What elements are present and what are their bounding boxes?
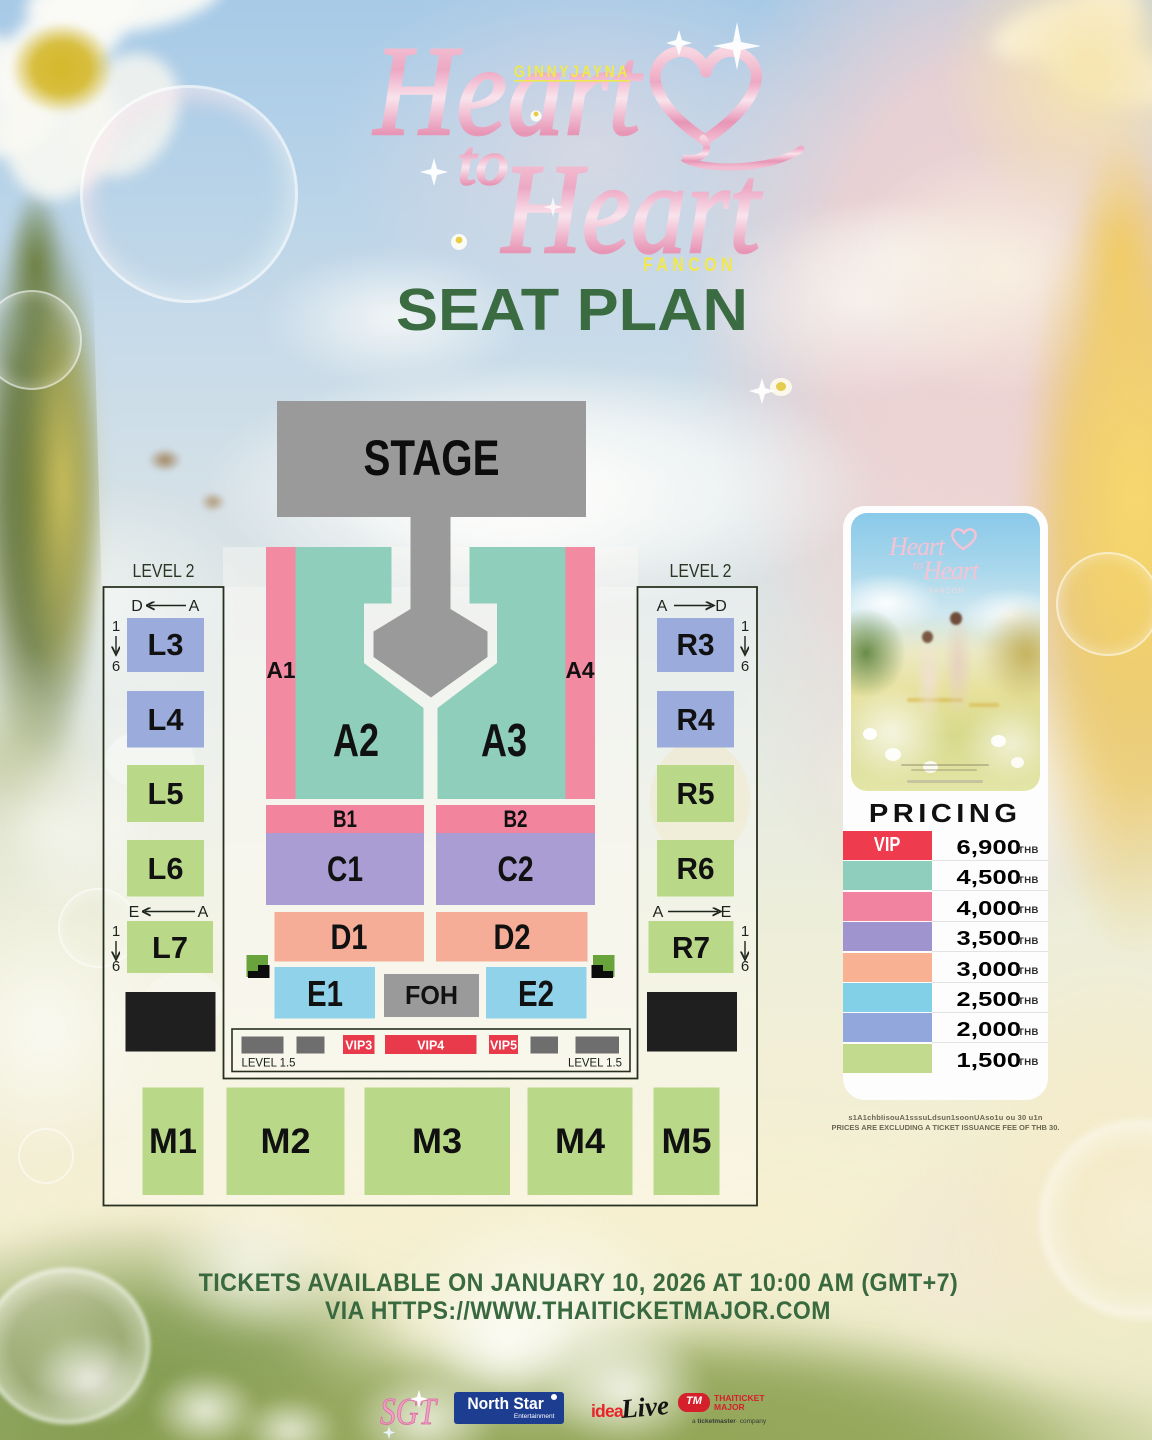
svg-text:LEVEL 2: LEVEL 2 xyxy=(133,561,195,581)
svg-text:C1: C1 xyxy=(327,850,363,889)
svg-text:E: E xyxy=(129,904,140,921)
svg-text:LEVEL 1.5: LEVEL 1.5 xyxy=(568,1056,622,1070)
svg-text:D: D xyxy=(715,598,727,615)
svg-text:B2: B2 xyxy=(504,806,528,833)
svg-text:L4: L4 xyxy=(148,702,185,737)
svg-text:M2: M2 xyxy=(261,1122,311,1161)
svg-text:C2: C2 xyxy=(498,850,534,889)
svg-text:D2: D2 xyxy=(494,918,531,957)
svg-text:6: 6 xyxy=(741,658,749,675)
svg-text:A4: A4 xyxy=(566,657,595,683)
svg-text:Heart: Heart xyxy=(922,556,980,585)
svg-text:M3: M3 xyxy=(412,1122,462,1161)
svg-text:to: to xyxy=(913,557,924,572)
svg-text:GINNYJAYNA: GINNYJAYNA xyxy=(514,62,630,81)
svg-text:B1: B1 xyxy=(333,806,357,833)
svg-text:R6: R6 xyxy=(677,851,715,886)
svg-text:D: D xyxy=(131,598,143,615)
svg-text:1: 1 xyxy=(741,618,749,635)
svg-text:VIP3: VIP3 xyxy=(345,1038,372,1053)
svg-text:FANCON: FANCON xyxy=(929,588,964,595)
svg-text:to: to xyxy=(458,130,508,198)
svg-text:A: A xyxy=(653,904,664,921)
svg-text:L5: L5 xyxy=(148,776,184,811)
svg-text:6: 6 xyxy=(112,958,120,975)
svg-text:D1: D1 xyxy=(331,918,368,957)
svg-text:M1: M1 xyxy=(149,1122,197,1161)
svg-text:L3: L3 xyxy=(148,627,184,662)
svg-text:A2: A2 xyxy=(333,714,379,766)
svg-text:A: A xyxy=(189,598,200,615)
svg-text:A3: A3 xyxy=(481,714,527,766)
svg-text:VIP5: VIP5 xyxy=(490,1038,517,1053)
svg-text:M4: M4 xyxy=(555,1122,606,1161)
svg-text:VIP4: VIP4 xyxy=(417,1038,445,1053)
svg-text:FOH: FOH xyxy=(405,980,458,1010)
svg-text:LEVEL 2: LEVEL 2 xyxy=(670,561,732,581)
svg-text:FANCON: FANCON xyxy=(643,255,737,276)
svg-text:R5: R5 xyxy=(677,776,715,811)
svg-text:E2: E2 xyxy=(518,973,554,1014)
svg-text:LEVEL 1.5: LEVEL 1.5 xyxy=(242,1056,296,1070)
svg-text:A: A xyxy=(198,904,209,921)
svg-text:1: 1 xyxy=(112,923,120,940)
svg-text:M5: M5 xyxy=(662,1122,712,1161)
svg-text:SGT: SGT xyxy=(380,1391,438,1433)
svg-text:6: 6 xyxy=(112,658,120,675)
svg-text:A1: A1 xyxy=(267,657,296,683)
svg-text:R3: R3 xyxy=(677,627,715,662)
svg-text:6: 6 xyxy=(741,958,749,975)
svg-text:STAGE: STAGE xyxy=(364,430,500,486)
svg-text:1: 1 xyxy=(741,923,749,940)
svg-text:R7: R7 xyxy=(672,930,710,965)
svg-text:R4: R4 xyxy=(677,702,716,737)
svg-text:L6: L6 xyxy=(148,851,184,886)
svg-text:SEAT PLAN: SEAT PLAN xyxy=(396,277,748,343)
svg-text:E: E xyxy=(721,904,732,921)
svg-text:A: A xyxy=(657,598,668,615)
svg-text:E1: E1 xyxy=(307,973,343,1014)
svg-text:1: 1 xyxy=(112,618,120,635)
svg-text:L7: L7 xyxy=(152,930,188,965)
